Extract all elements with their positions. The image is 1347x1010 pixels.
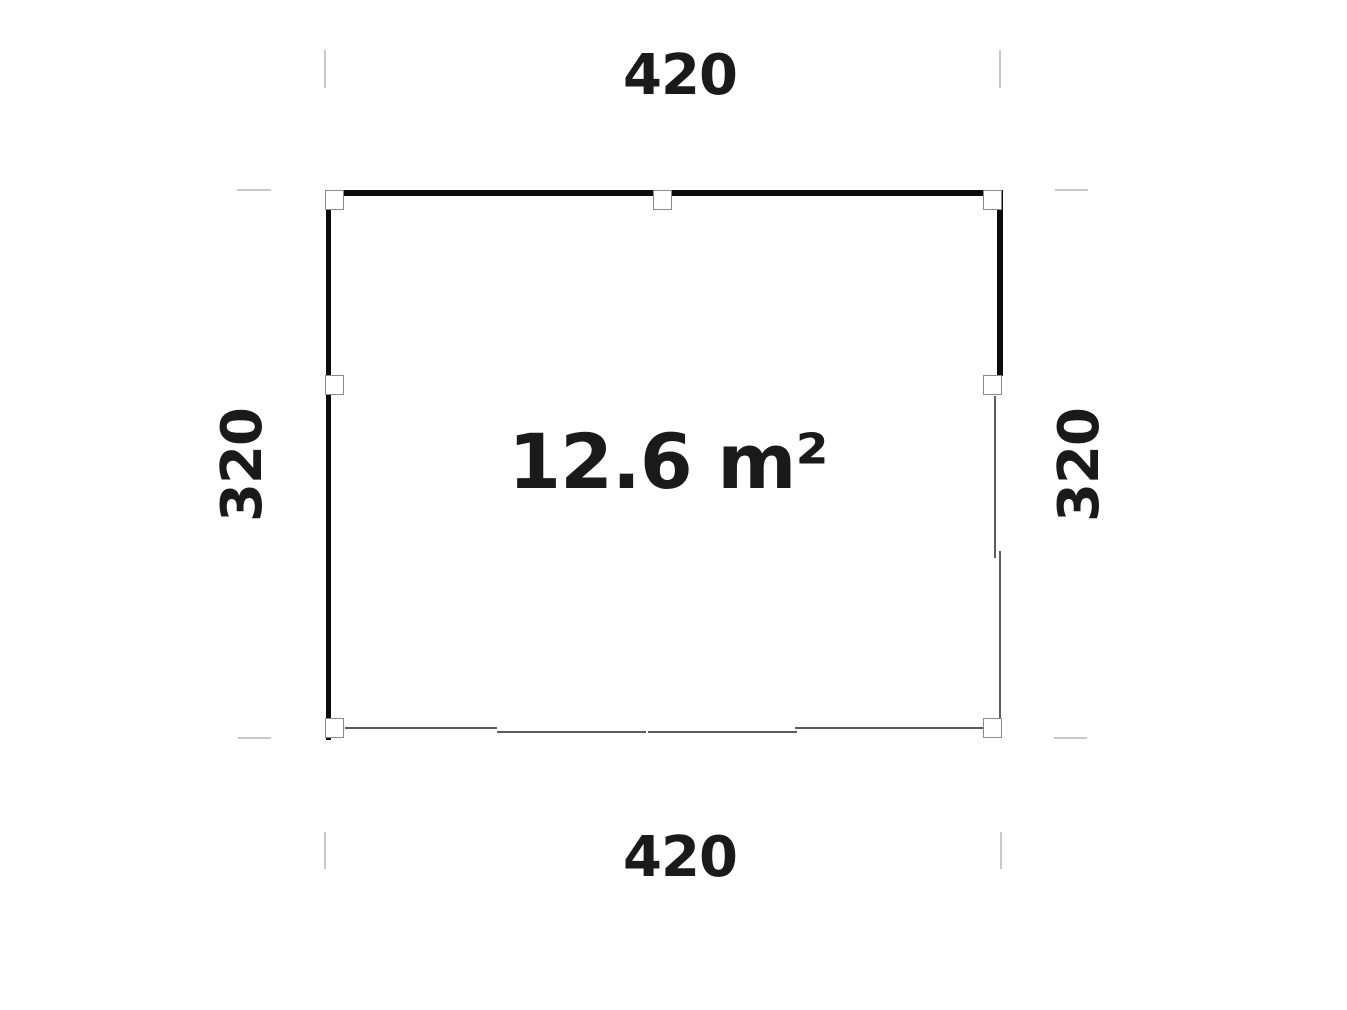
area-label: 12.6 m² — [418, 420, 918, 504]
dimension-dash-right-top — [1055, 189, 1088, 191]
post-bottom-right — [983, 718, 1002, 738]
dimension-tick-bottom-left — [324, 832, 326, 869]
wall-left — [326, 190, 331, 740]
open-edge-bottom-segment-2 — [497, 731, 646, 733]
post-top-left — [325, 190, 344, 210]
dimension-tick-top-right — [999, 50, 1001, 88]
dimension-tick-bottom-right — [1000, 832, 1002, 869]
post-top-right — [983, 190, 1002, 210]
open-edge-right-upper — [994, 396, 996, 558]
dimension-tick-top-left — [324, 50, 326, 88]
post-left-middle — [325, 375, 344, 395]
dimension-label-left: 320 — [215, 365, 271, 565]
post-bottom-left — [325, 718, 344, 738]
dimension-dash-left-top — [237, 189, 271, 191]
dimension-label-bottom: 420 — [580, 830, 780, 886]
open-edge-right-lower — [999, 551, 1001, 719]
open-edge-bottom-segment-4 — [795, 727, 984, 729]
floor-plan-canvas: 420 420 320 320 12.6 m² — [0, 0, 1347, 1010]
post-right-middle — [983, 375, 1002, 395]
dimension-label-top: 420 — [580, 48, 780, 104]
dimension-dash-right-bottom — [1054, 737, 1087, 739]
open-edge-bottom-segment-3 — [648, 731, 797, 733]
open-edge-bottom-segment-1 — [345, 727, 497, 729]
wall-right-upper — [997, 190, 1003, 376]
post-top-middle — [653, 190, 672, 210]
dimension-label-right: 320 — [1052, 365, 1108, 565]
dimension-dash-left-bottom — [238, 737, 271, 739]
